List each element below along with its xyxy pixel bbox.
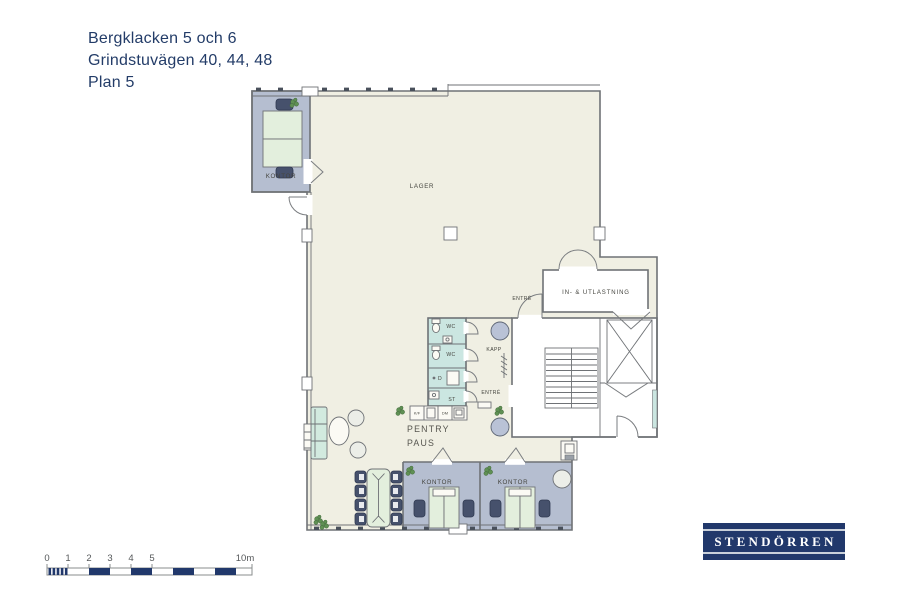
room-label-entre-lower: ENTRÉ <box>481 389 500 396</box>
room-label-dusch: D <box>438 376 442 382</box>
radiator <box>478 402 491 408</box>
floor-drain <box>433 377 436 380</box>
room-label-paus: PAUS <box>407 438 435 448</box>
logo-text: STENDÖRREN <box>711 534 836 550</box>
office-chair <box>414 500 425 517</box>
scale-bar: 0 1 2 3 4 5 10m <box>44 553 254 575</box>
room-label-kontor-sw: KONTOR <box>422 479 453 486</box>
microwave <box>454 408 464 418</box>
label-fridge: K/F <box>414 411 421 416</box>
toilet-icon <box>432 319 440 333</box>
armchair <box>491 322 509 340</box>
desk <box>263 111 302 139</box>
sink <box>427 408 435 418</box>
room-stair-hall-fill <box>512 318 657 437</box>
armchair <box>350 442 366 458</box>
vending-machine <box>561 441 577 460</box>
room-label-entre-upper: ENTRÉ <box>512 295 531 302</box>
room-label-wc2: WC <box>446 352 455 358</box>
stendorren-logo: STENDÖRREN <box>703 523 845 560</box>
coffee-table <box>329 417 349 445</box>
radiator <box>304 424 311 450</box>
room-label-lager: LAGER <box>410 183 434 190</box>
sofa <box>311 407 327 459</box>
room-label-pentry: PENTRY <box>407 424 450 434</box>
room-fills <box>252 91 657 530</box>
scale-tick-1: 1 <box>65 553 70 564</box>
scale-end-label: 10m <box>236 553 255 564</box>
column <box>444 227 457 240</box>
desk <box>263 139 302 167</box>
window-strip <box>653 390 658 428</box>
floor-plan-svg: KONTOR LAGER ENTRÉ IN- & UTLASTNING WC W… <box>0 0 900 600</box>
scale-tick-3: 3 <box>107 553 112 564</box>
room-label-kontor-se: KONTOR <box>498 479 529 486</box>
logo-rule-top <box>703 529 845 531</box>
scale-tick-4: 4 <box>128 553 133 564</box>
toilet-icon <box>432 346 440 360</box>
scale-tick-0: 0 <box>44 553 49 564</box>
logo-rule-bottom <box>703 552 845 554</box>
room-label-in-utlastning: IN- & UTLASTNING <box>562 290 630 296</box>
room-label-kapp: KAPP <box>486 347 501 353</box>
shower-tray <box>447 371 459 385</box>
room-label-kontor-nw: KONTOR <box>266 173 297 180</box>
office-chair <box>539 500 550 517</box>
office-chair <box>490 500 501 517</box>
armchair <box>491 418 509 436</box>
floor-plan-page: Bergklacken 5 och 6 Grindstuvägen 40, 44… <box>0 0 900 600</box>
sink <box>443 336 452 343</box>
sink <box>429 391 439 399</box>
armchair <box>553 470 571 488</box>
scale-tick-2: 2 <box>86 553 91 564</box>
armchair <box>348 410 364 426</box>
room-label-wc1: WC <box>446 324 455 330</box>
label-dishwasher: DM <box>442 411 448 416</box>
room-label-stad: ST <box>448 397 455 403</box>
scale-tick-5: 5 <box>149 553 154 564</box>
office-chair <box>463 500 474 517</box>
